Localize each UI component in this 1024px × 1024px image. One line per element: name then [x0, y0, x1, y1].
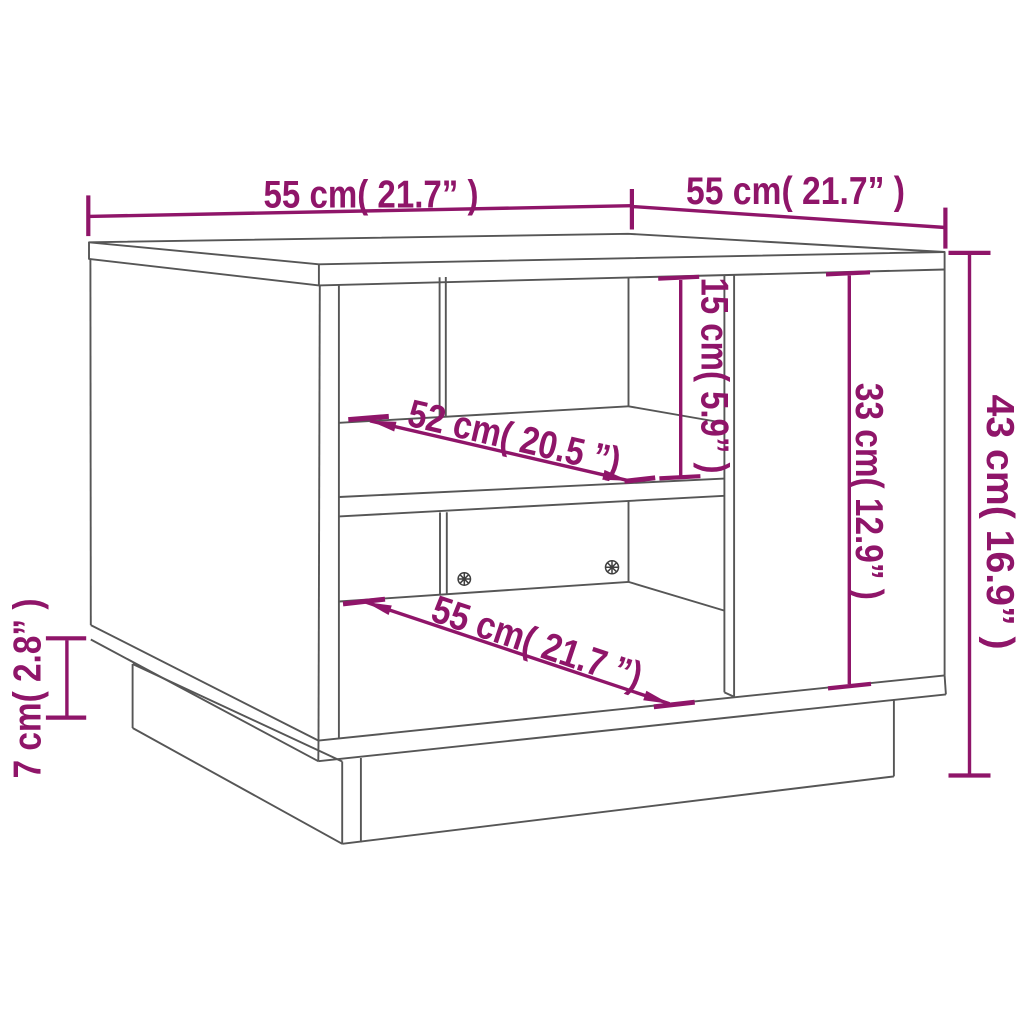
svg-text:33 cm( 12.9” ): 33 cm( 12.9” ): [847, 383, 890, 600]
svg-text:55 cm( 21.7” ): 55 cm( 21.7” ): [686, 170, 905, 213]
svg-text:15 cm( 5.9” ): 15 cm( 5.9” ): [693, 278, 736, 474]
svg-text:55 cm( 21.7” ): 55 cm( 21.7” ): [264, 174, 479, 217]
svg-text:43 cm( 16.9” ): 43 cm( 16.9” ): [978, 395, 1021, 650]
svg-text:7 cm( 2.8” ): 7 cm( 2.8” ): [7, 599, 50, 779]
svg-text:52 cm( 20.5 ”): 52 cm( 20.5 ”): [404, 392, 625, 483]
svg-text:55 cm( 21.7 ”): 55 cm( 21.7 ”): [426, 588, 647, 698]
